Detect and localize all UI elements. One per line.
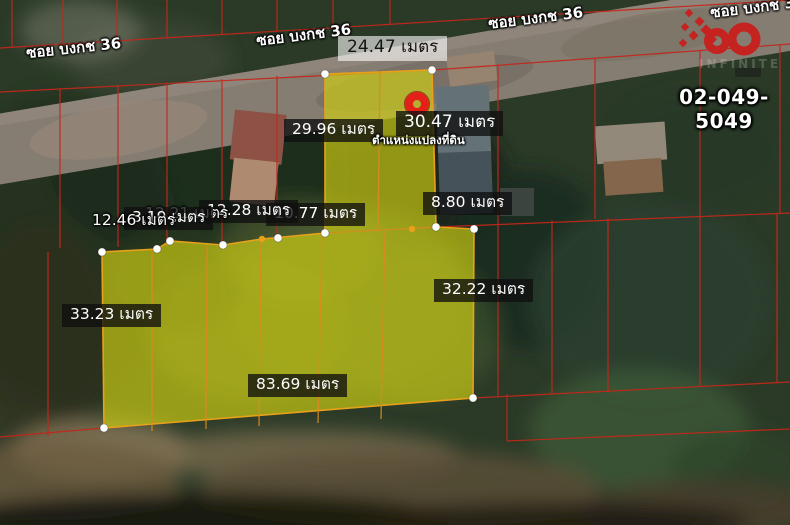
plot-position-caption: ตำแหน่งแปลงที่ดิน [372, 132, 465, 150]
measurement-label-upper-left: 29.96 เมตร [284, 119, 383, 142]
measurement-label-step: 8.80 เมตร [423, 192, 512, 215]
measurement-label-left-side: 33.23 เมตร [62, 304, 161, 327]
measurement-label-top-width: 24.47 เมตร [338, 36, 447, 61]
measurement-label-bottom-width: 83.69 เมตร [248, 374, 347, 397]
contact-phone-number: 02-049-5049 [658, 85, 790, 133]
measurement-label-right-side: 32.22 เมตร [434, 279, 533, 302]
map-canvas [0, 0, 790, 525]
satellite-land-plot-map: ซอย บงกช 36 ซอย บงกช 36 ซอย บงกช 36 ซอย … [0, 0, 790, 525]
measurement-label-segment: 12.46 เมตร [92, 211, 175, 230]
infinity-logo-icon [675, 5, 790, 85]
brand-logo: INFINITE [675, 5, 790, 85]
logo-tagline-box [735, 68, 761, 77]
